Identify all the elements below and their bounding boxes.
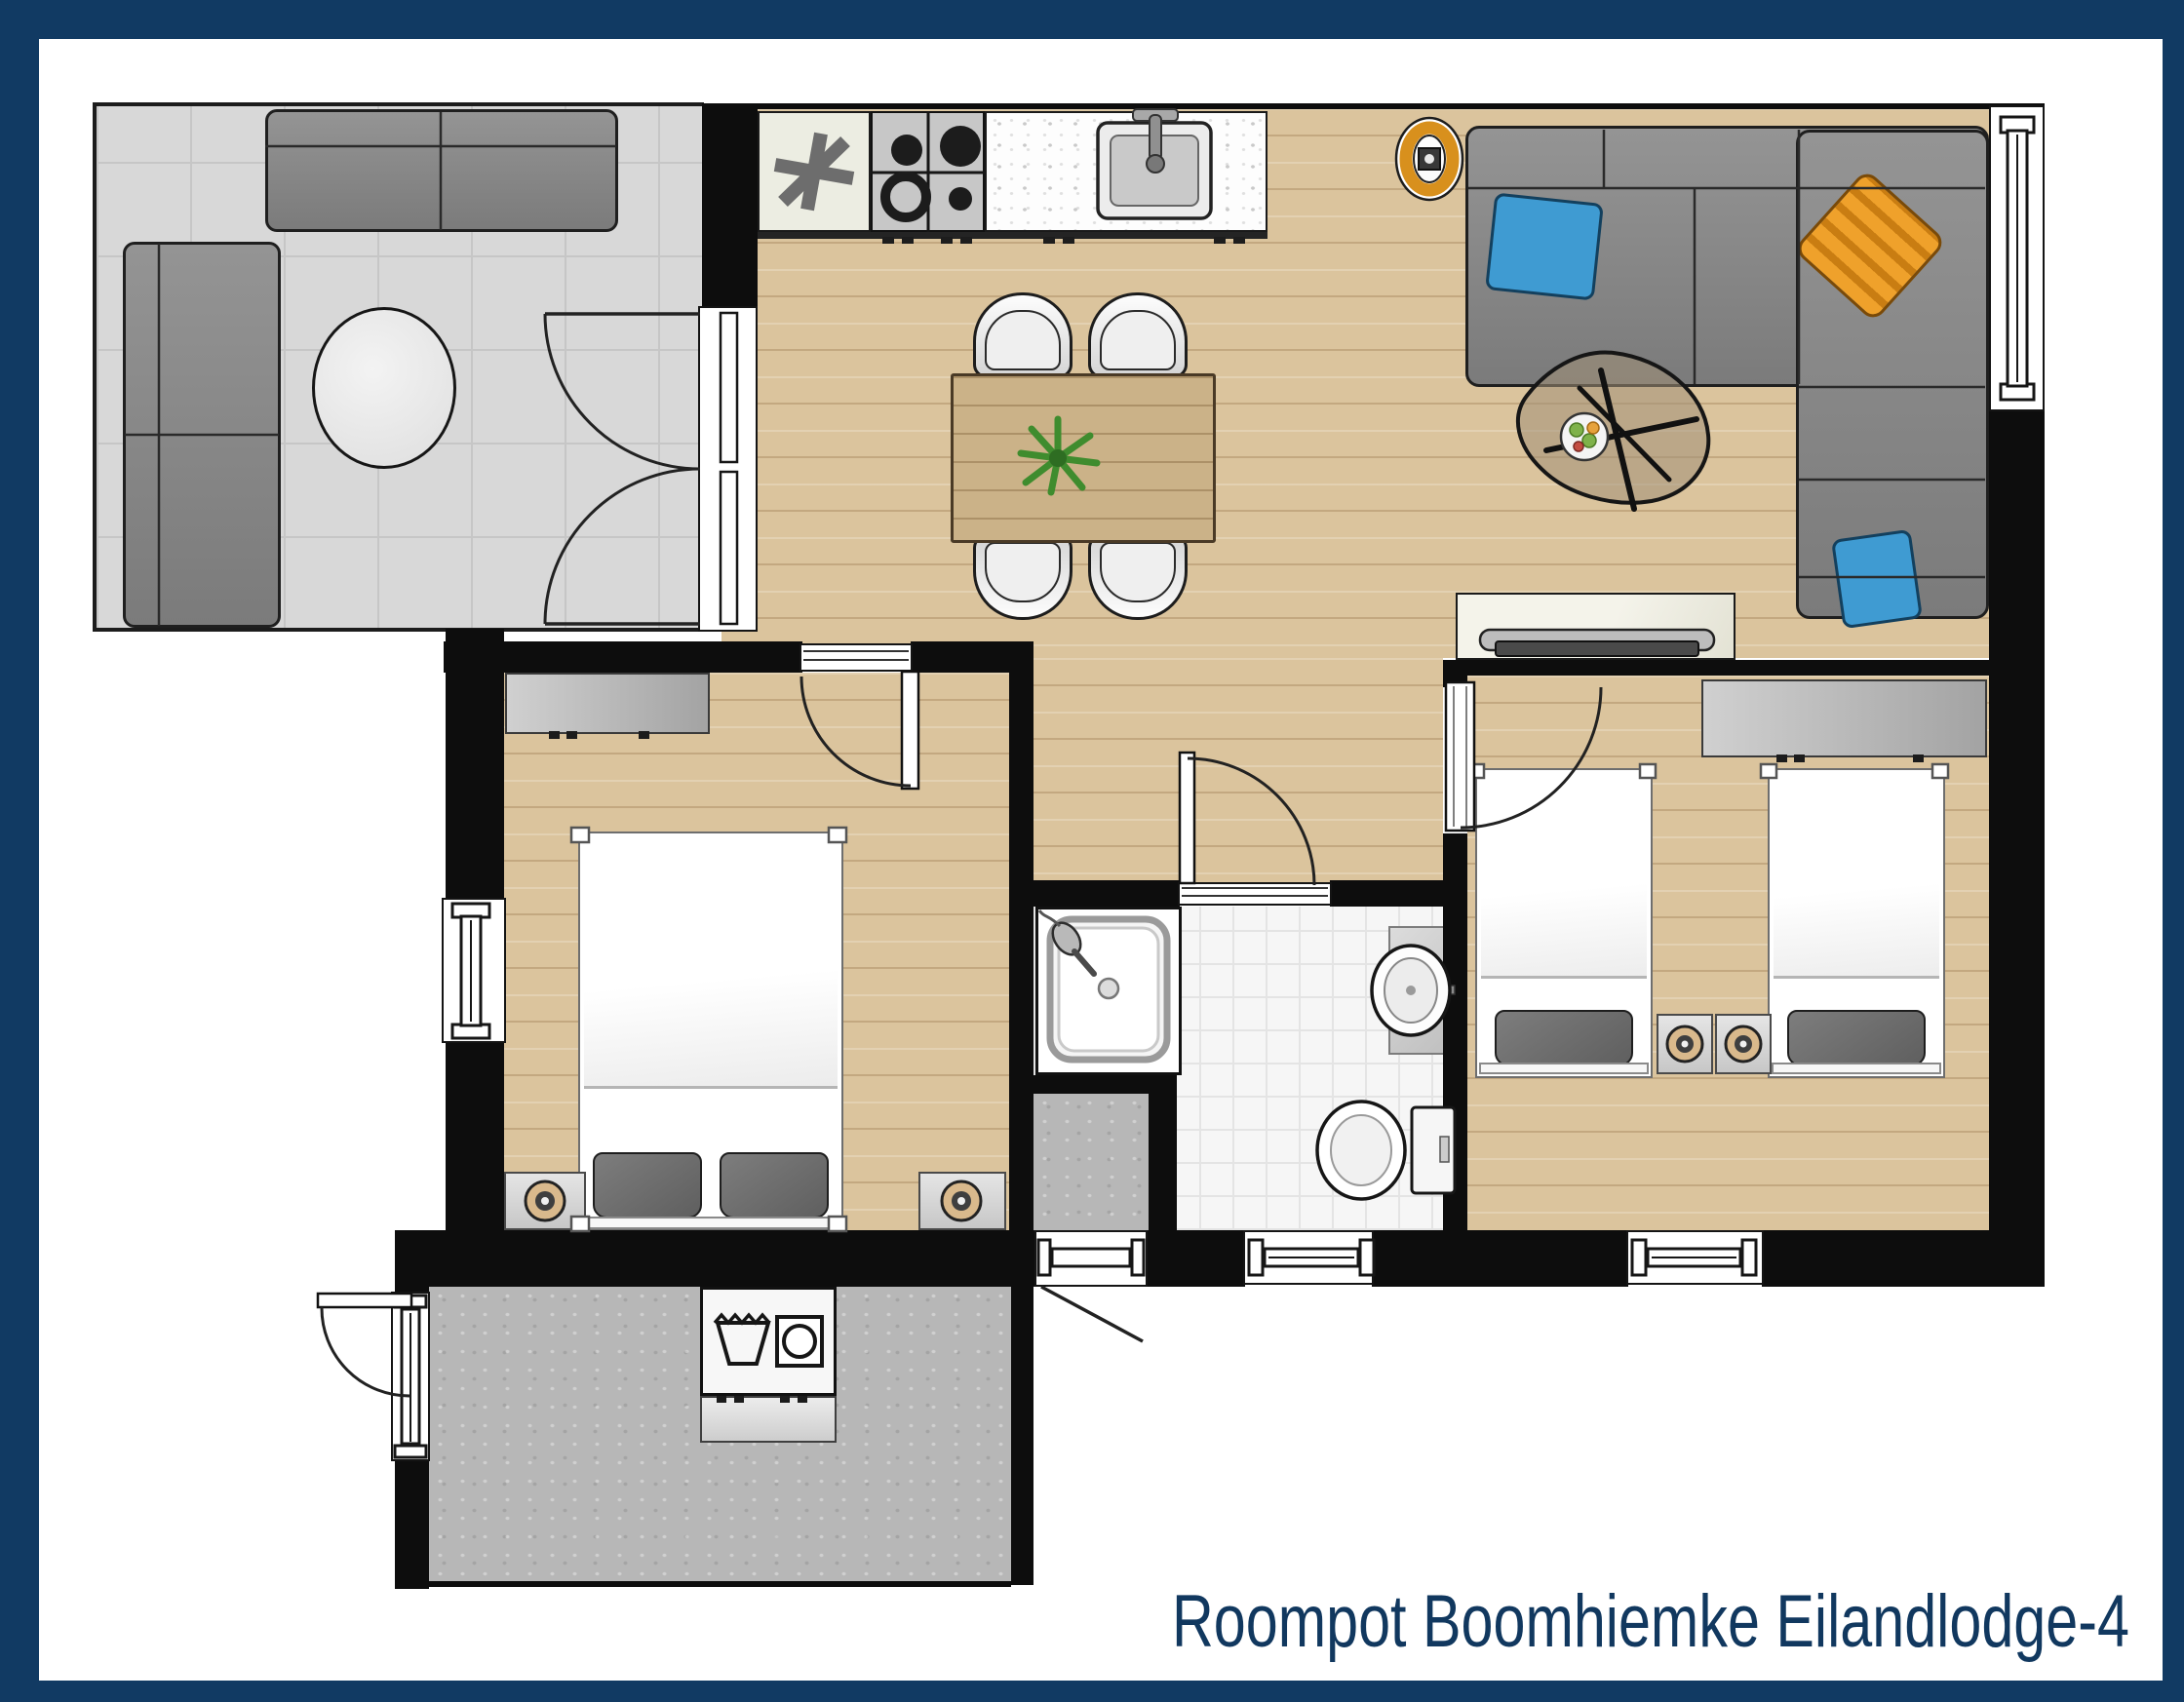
- wall-corridor-left: [1009, 673, 1033, 1287]
- wall-top-line: [721, 103, 2045, 109]
- terrace-round-table: [312, 307, 456, 469]
- window-bedroomL-left: [442, 898, 506, 1043]
- kitchen-cabinet-line: [758, 232, 1267, 239]
- single-bed-duvet: [1774, 784, 1939, 979]
- wall-utility-bottom-line: [429, 1581, 1011, 1587]
- bedroomL-door-threshold: [799, 643, 913, 672]
- wall-bath-top-a: [1033, 880, 1180, 907]
- single-bed-duvet: [1481, 784, 1647, 979]
- chair-seat: [1100, 542, 1176, 602]
- frame-bottom: [0, 1681, 2184, 1702]
- bed-pillow: [1495, 1010, 1633, 1066]
- outdoor-sofa-vertical: [123, 242, 281, 628]
- wall-bedroomL-top-b: [911, 641, 1033, 673]
- wall-bath-top-b: [1330, 880, 1443, 907]
- floorplan-canvas: Roompot Boomhiemke Eilandlodge-4: [0, 0, 2184, 1702]
- sofa-cushion-blue: [1831, 529, 1923, 630]
- wall-terrace-column: [702, 103, 758, 308]
- wall-bedroomR-left-b: [1443, 833, 1467, 1287]
- wall-bottom-d: [1762, 1230, 2045, 1287]
- utility-shelf: [700, 1396, 837, 1443]
- bed-foot-rail: [1772, 1063, 1941, 1074]
- dining-chair: [1088, 292, 1188, 378]
- wall-right: [1989, 409, 2045, 1287]
- nightstand: [1657, 1014, 1713, 1074]
- wall-bottom-c: [1372, 1230, 1628, 1287]
- nightstand: [1715, 1014, 1772, 1074]
- double-bed-duvet: [584, 848, 838, 1089]
- wall-left-upper: [446, 629, 504, 902]
- terrace-edge-bottom: [93, 628, 704, 632]
- tv-lowboard: [1456, 593, 1735, 660]
- shower: [1035, 907, 1182, 1075]
- washer-dryer: [700, 1287, 837, 1396]
- dining-chair: [973, 292, 1072, 378]
- wall-bottom-b: [1146, 1230, 1245, 1287]
- back-door-sill: [1034, 1230, 1148, 1287]
- wall-nook-top: [1033, 1075, 1177, 1094]
- wall-bedroomR-left-a: [1443, 660, 1467, 687]
- frame-top: [0, 0, 2184, 39]
- sofa-cushion-blue: [1485, 192, 1604, 300]
- bathroom-door-threshold: [1178, 882, 1332, 906]
- bed-pillow: [1787, 1010, 1926, 1066]
- window-bathroom: [1243, 1230, 1374, 1285]
- back-entry-floor: [1033, 1094, 1149, 1230]
- wall-left-lower: [446, 1041, 504, 1230]
- terrace-edge-left: [93, 102, 97, 632]
- wall-bottom-a: [1009, 1230, 1036, 1287]
- chair-seat: [1100, 310, 1176, 370]
- frame-right: [2163, 0, 2184, 1702]
- gas-hob: [871, 111, 985, 232]
- wall-bedroomL-bottom: [395, 1230, 1009, 1287]
- window-bedroomR: [1626, 1230, 1764, 1285]
- chair-seat: [985, 542, 1061, 602]
- wall-utility-right: [1011, 1287, 1033, 1585]
- terrace-edge-top: [93, 102, 704, 106]
- chair-seat: [985, 310, 1061, 370]
- bed-pillow: [593, 1152, 702, 1218]
- frame-left: [0, 0, 39, 1702]
- nightstand: [918, 1172, 1006, 1230]
- entrance-door-frame: [391, 1292, 430, 1461]
- bed-foot-rail: [1479, 1063, 1649, 1074]
- bed-foot-rail: [582, 1217, 839, 1229]
- dining-table: [951, 373, 1216, 543]
- outdoor-sofa-horizontal: [265, 109, 618, 232]
- wall-bedroomR-top: [1456, 660, 1989, 676]
- wardrobe-right-bedroom: [1701, 679, 1987, 757]
- hallway-floor: [1033, 658, 1443, 905]
- plan-title: Roompot Boomhiemke Eilandlodge-4: [1172, 1579, 2129, 1664]
- bed-pillow: [720, 1152, 829, 1218]
- nightstand: [504, 1172, 586, 1230]
- wall-utility-left-b: [395, 1457, 429, 1589]
- french-door-frame: [698, 306, 758, 632]
- freezer: [758, 111, 871, 232]
- window-living-right: [1989, 105, 2045, 411]
- wall-nook-right: [1149, 1094, 1177, 1230]
- back-door: [1041, 1287, 1143, 1341]
- wardrobe-left-bedroom: [505, 673, 710, 734]
- kitchen-counter: [985, 111, 1267, 232]
